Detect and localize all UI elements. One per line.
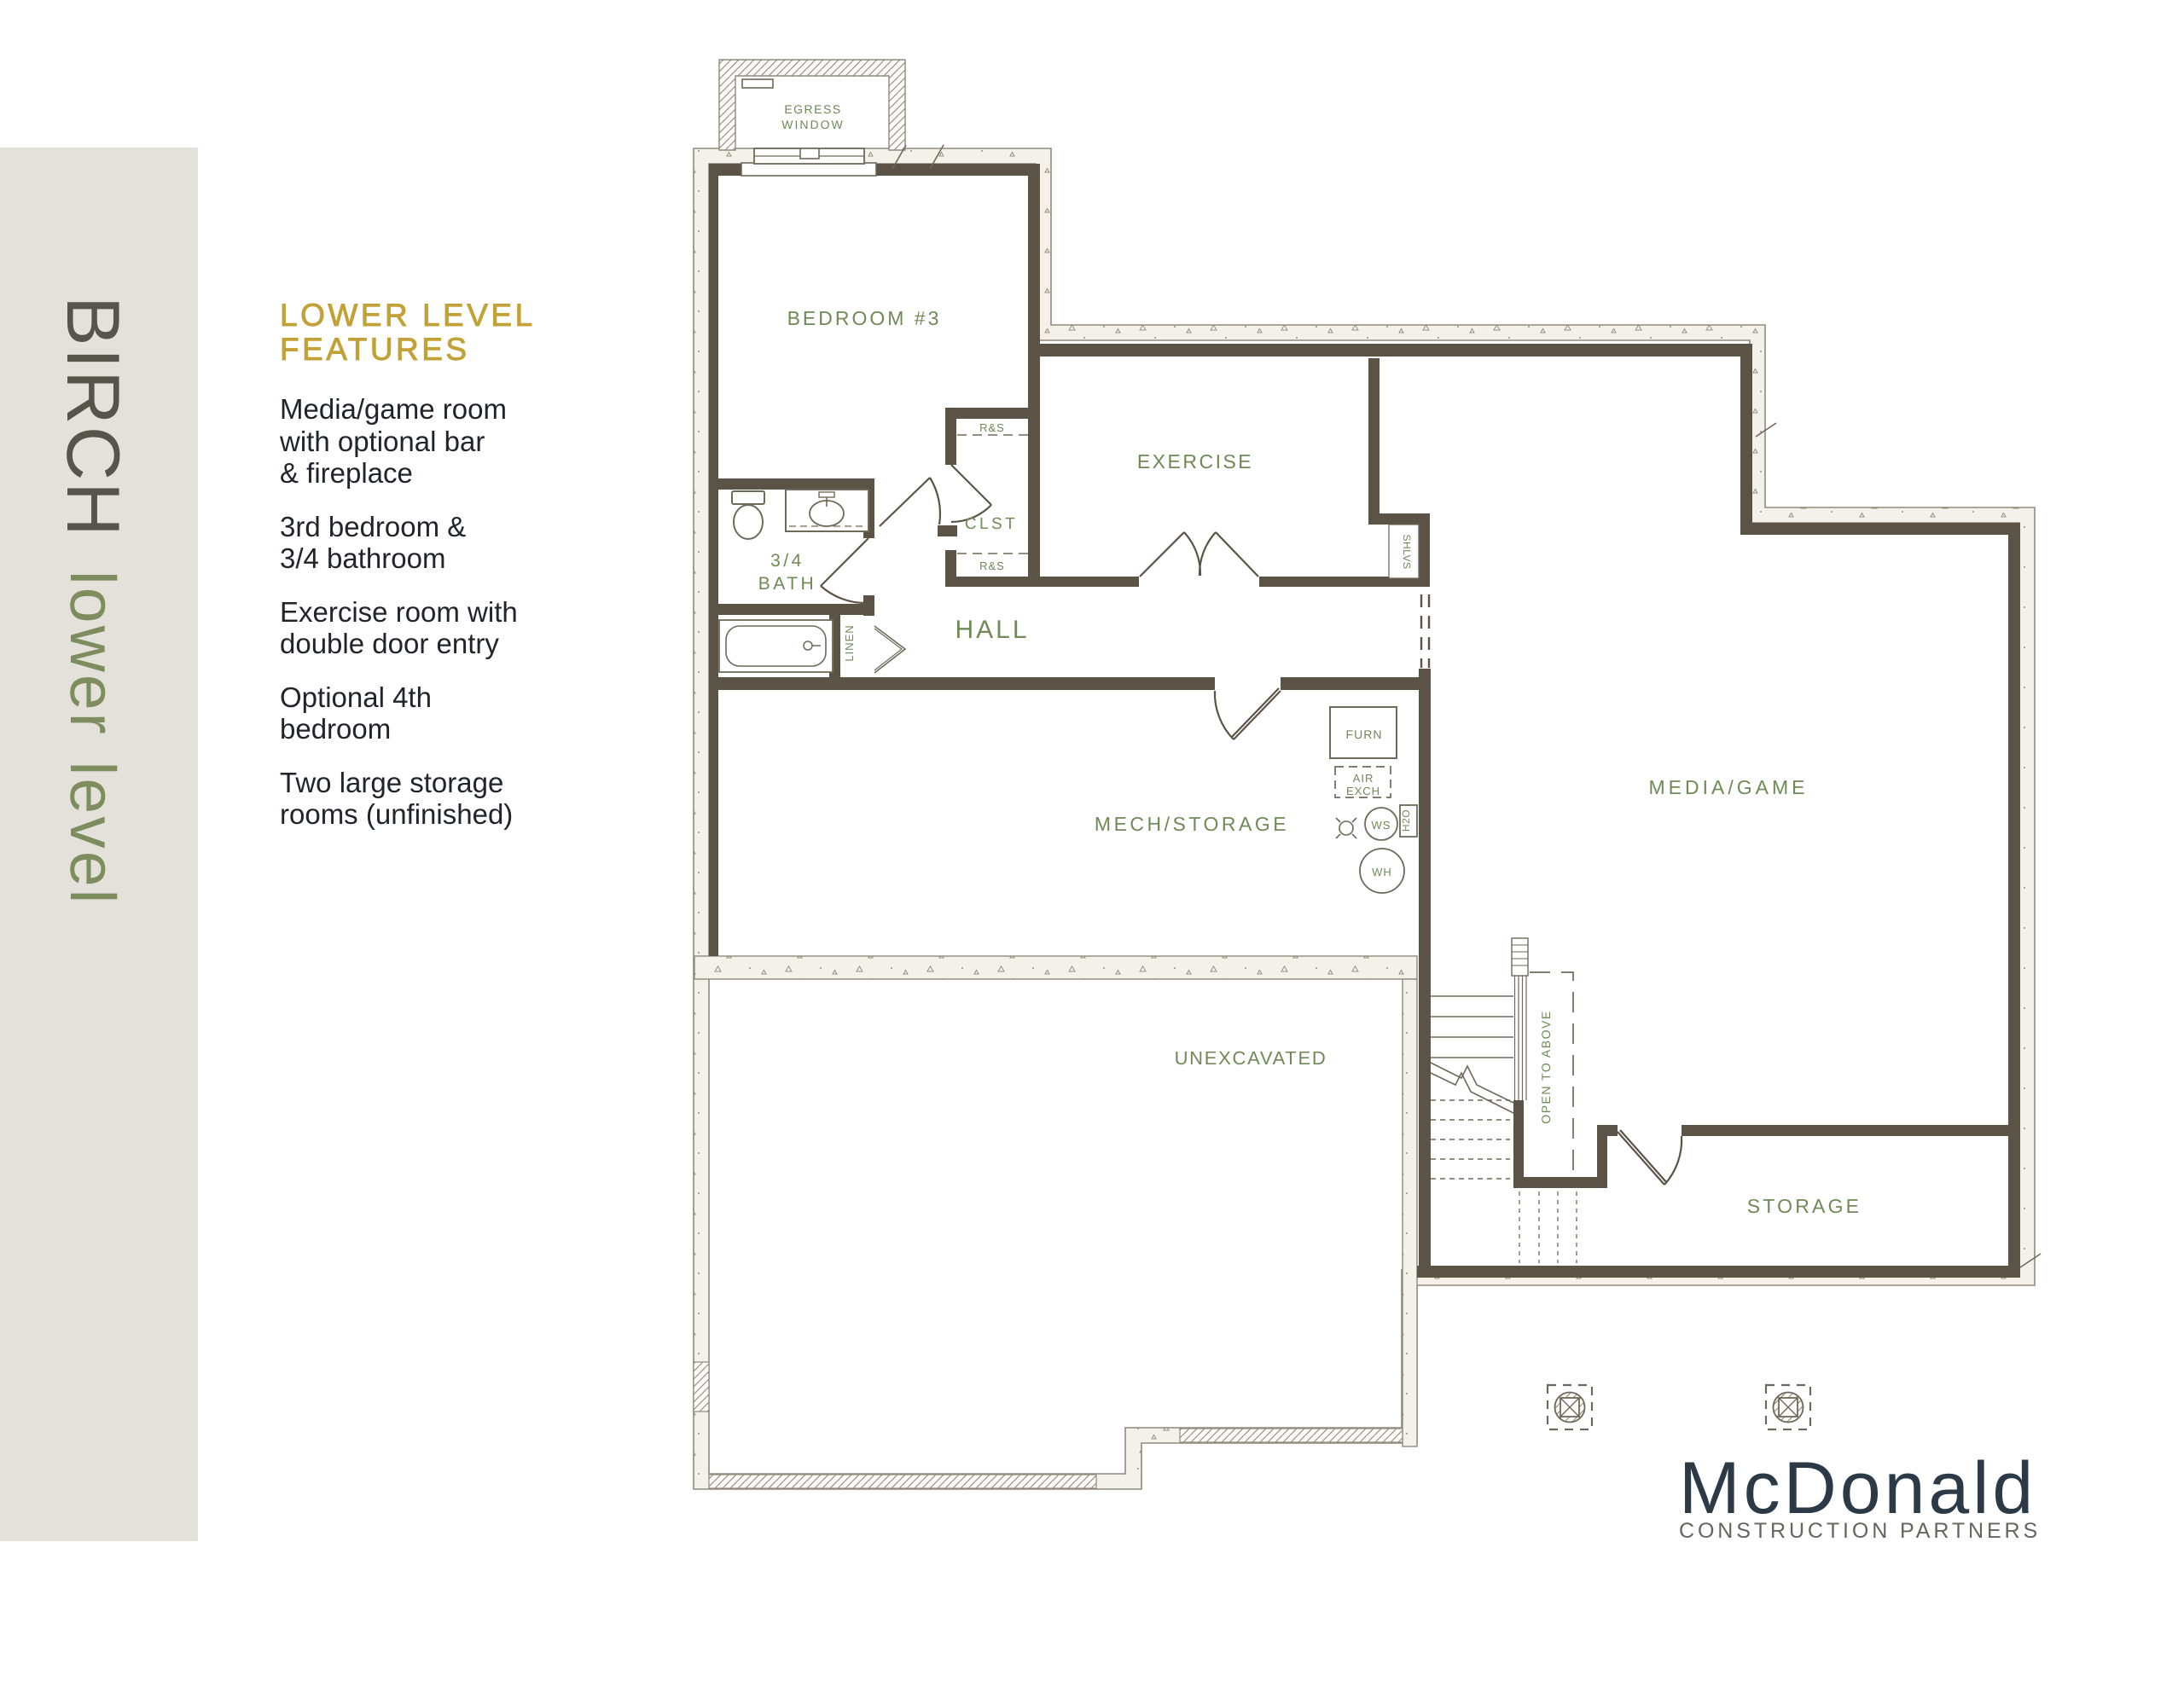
svg-text:WH: WH <box>1372 866 1392 878</box>
svg-text:FURN: FURN <box>1346 728 1383 741</box>
svg-text:EXCH: EXCH <box>1346 785 1380 797</box>
svg-text:SHLVS: SHLVS <box>1401 535 1413 570</box>
svg-text:EXERCISE: EXERCISE <box>1137 450 1253 472</box>
svg-text:R&S: R&S <box>979 559 1005 572</box>
svg-text:OPEN TO ABOVE: OPEN TO ABOVE <box>1539 1010 1553 1123</box>
svg-text:CLST: CLST <box>965 515 1018 533</box>
svg-text:R&S: R&S <box>979 421 1005 434</box>
svg-text:WS: WS <box>1372 819 1391 832</box>
svg-text:MEDIA/GAME: MEDIA/GAME <box>1649 776 1809 798</box>
svg-text:H2O: H2O <box>1400 809 1412 832</box>
svg-text:AIR: AIR <box>1353 772 1374 785</box>
svg-text:MECH/STORAGE: MECH/STORAGE <box>1095 813 1289 835</box>
svg-text:EGRESS: EGRESS <box>784 102 841 116</box>
svg-text:LINEN: LINEN <box>843 624 856 661</box>
svg-text:BEDROOM #3: BEDROOM #3 <box>787 307 942 329</box>
svg-text:STORAGE: STORAGE <box>1747 1195 1862 1217</box>
svg-text:BATH: BATH <box>758 574 816 594</box>
svg-text:UNEXCAVATED: UNEXCAVATED <box>1175 1047 1327 1069</box>
svg-text:3/4: 3/4 <box>770 551 804 571</box>
svg-text:WINDOW: WINDOW <box>781 118 844 131</box>
svg-text:HALL: HALL <box>955 616 1029 644</box>
